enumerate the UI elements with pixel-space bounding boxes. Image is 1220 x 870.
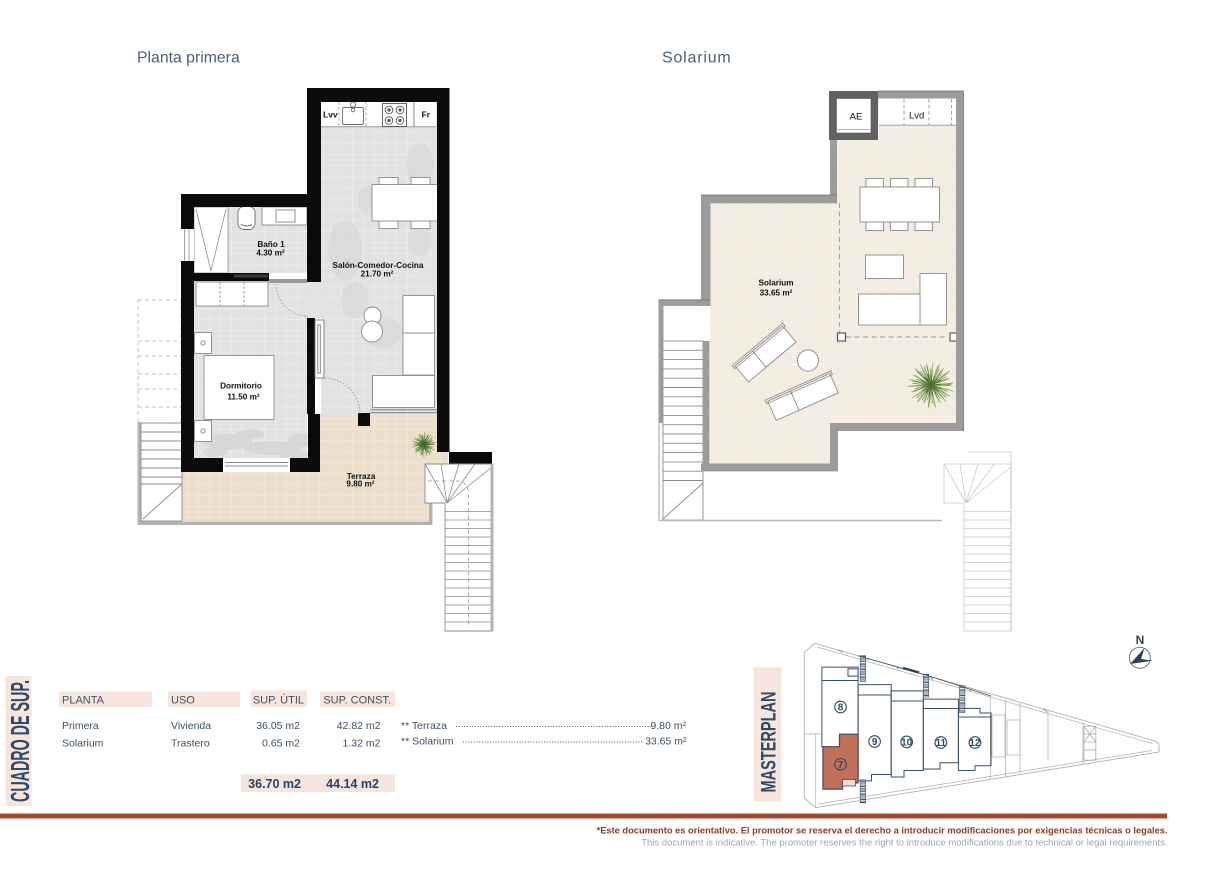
svg-text:Lvv: Lvv [323, 110, 338, 120]
svg-text:9.80 m²: 9.80 m² [650, 720, 686, 732]
svg-text:This document is indicative. T: This document is indicative. The promote… [641, 838, 1167, 849]
svg-text:10: 10 [901, 738, 913, 749]
svg-text:33.65 m²: 33.65 m² [645, 736, 687, 748]
svg-text:Vivienda: Vivienda [171, 720, 211, 732]
svg-text:MASTERPLAN: MASTERPLAN [758, 692, 781, 793]
svg-text:Lvd: Lvd [909, 111, 924, 122]
svg-text:44.14 m2: 44.14 m2 [326, 777, 379, 791]
svg-text:8: 8 [838, 703, 844, 714]
svg-text:Primera: Primera [62, 720, 99, 732]
svg-text:CUADRO DE SUP.: CUADRO DE SUP. [5, 680, 35, 802]
svg-text:33.65 m²: 33.65 m² [760, 289, 793, 298]
svg-text:9.80 m²: 9.80 m² [346, 480, 374, 489]
svg-text:PLANTA: PLANTA [62, 695, 105, 707]
svg-text:USO: USO [171, 695, 195, 707]
svg-text:Solarium: Solarium [62, 738, 104, 750]
svg-text:AE: AE [850, 112, 863, 123]
svg-text:11: 11 [936, 738, 947, 749]
svg-text:Solarium: Solarium [758, 279, 793, 288]
svg-text:12: 12 [969, 738, 981, 749]
svg-text:11.50 m²: 11.50 m² [227, 393, 260, 402]
svg-text:Trastero: Trastero [171, 738, 210, 750]
svg-text:21.70 m²: 21.70 m² [361, 270, 394, 279]
svg-text:0.65 m2: 0.65 m2 [262, 738, 300, 750]
svg-text:Dormitorio: Dormitorio [220, 382, 262, 391]
svg-text:** Terraza: ** Terraza [401, 720, 447, 732]
svg-text:7: 7 [838, 760, 844, 771]
svg-text:Solarium: Solarium [662, 50, 732, 67]
svg-text:9: 9 [872, 737, 878, 748]
svg-text:36.05 m2: 36.05 m2 [256, 720, 300, 732]
svg-text:N: N [1136, 633, 1145, 647]
svg-text:Planta primera: Planta primera [137, 50, 240, 67]
svg-text:36.70 m2: 36.70 m2 [248, 777, 301, 791]
svg-text:SUP. CONST.: SUP. CONST. [323, 695, 391, 707]
svg-text:SUP. ÚTIL: SUP. ÚTIL [253, 694, 304, 707]
svg-text:*Este documento es orientativo: *Este documento es orientativo. El promo… [597, 826, 1168, 836]
svg-text:42.82 m2: 42.82 m2 [337, 720, 381, 732]
svg-text:1.32 m2: 1.32 m2 [343, 738, 381, 750]
svg-text:Fr: Fr [422, 110, 431, 120]
svg-text:** Solarium: ** Solarium [401, 736, 454, 748]
svg-text:4.30 m²: 4.30 m² [256, 249, 284, 258]
